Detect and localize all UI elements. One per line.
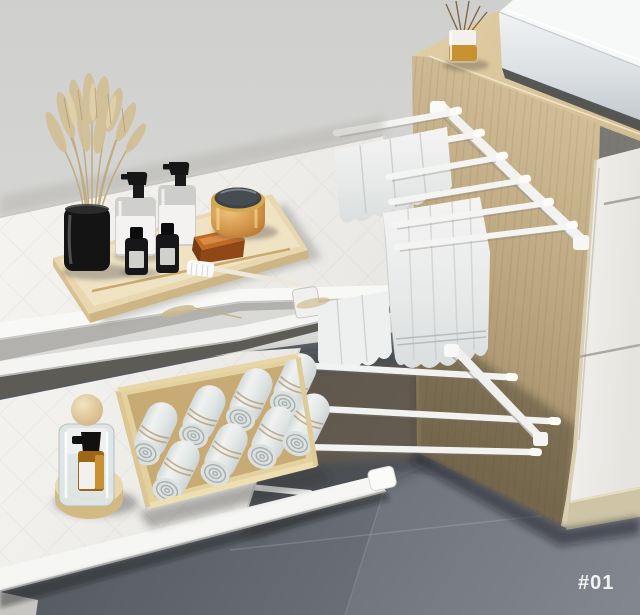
svg-text:#01: #01: [578, 572, 614, 594]
